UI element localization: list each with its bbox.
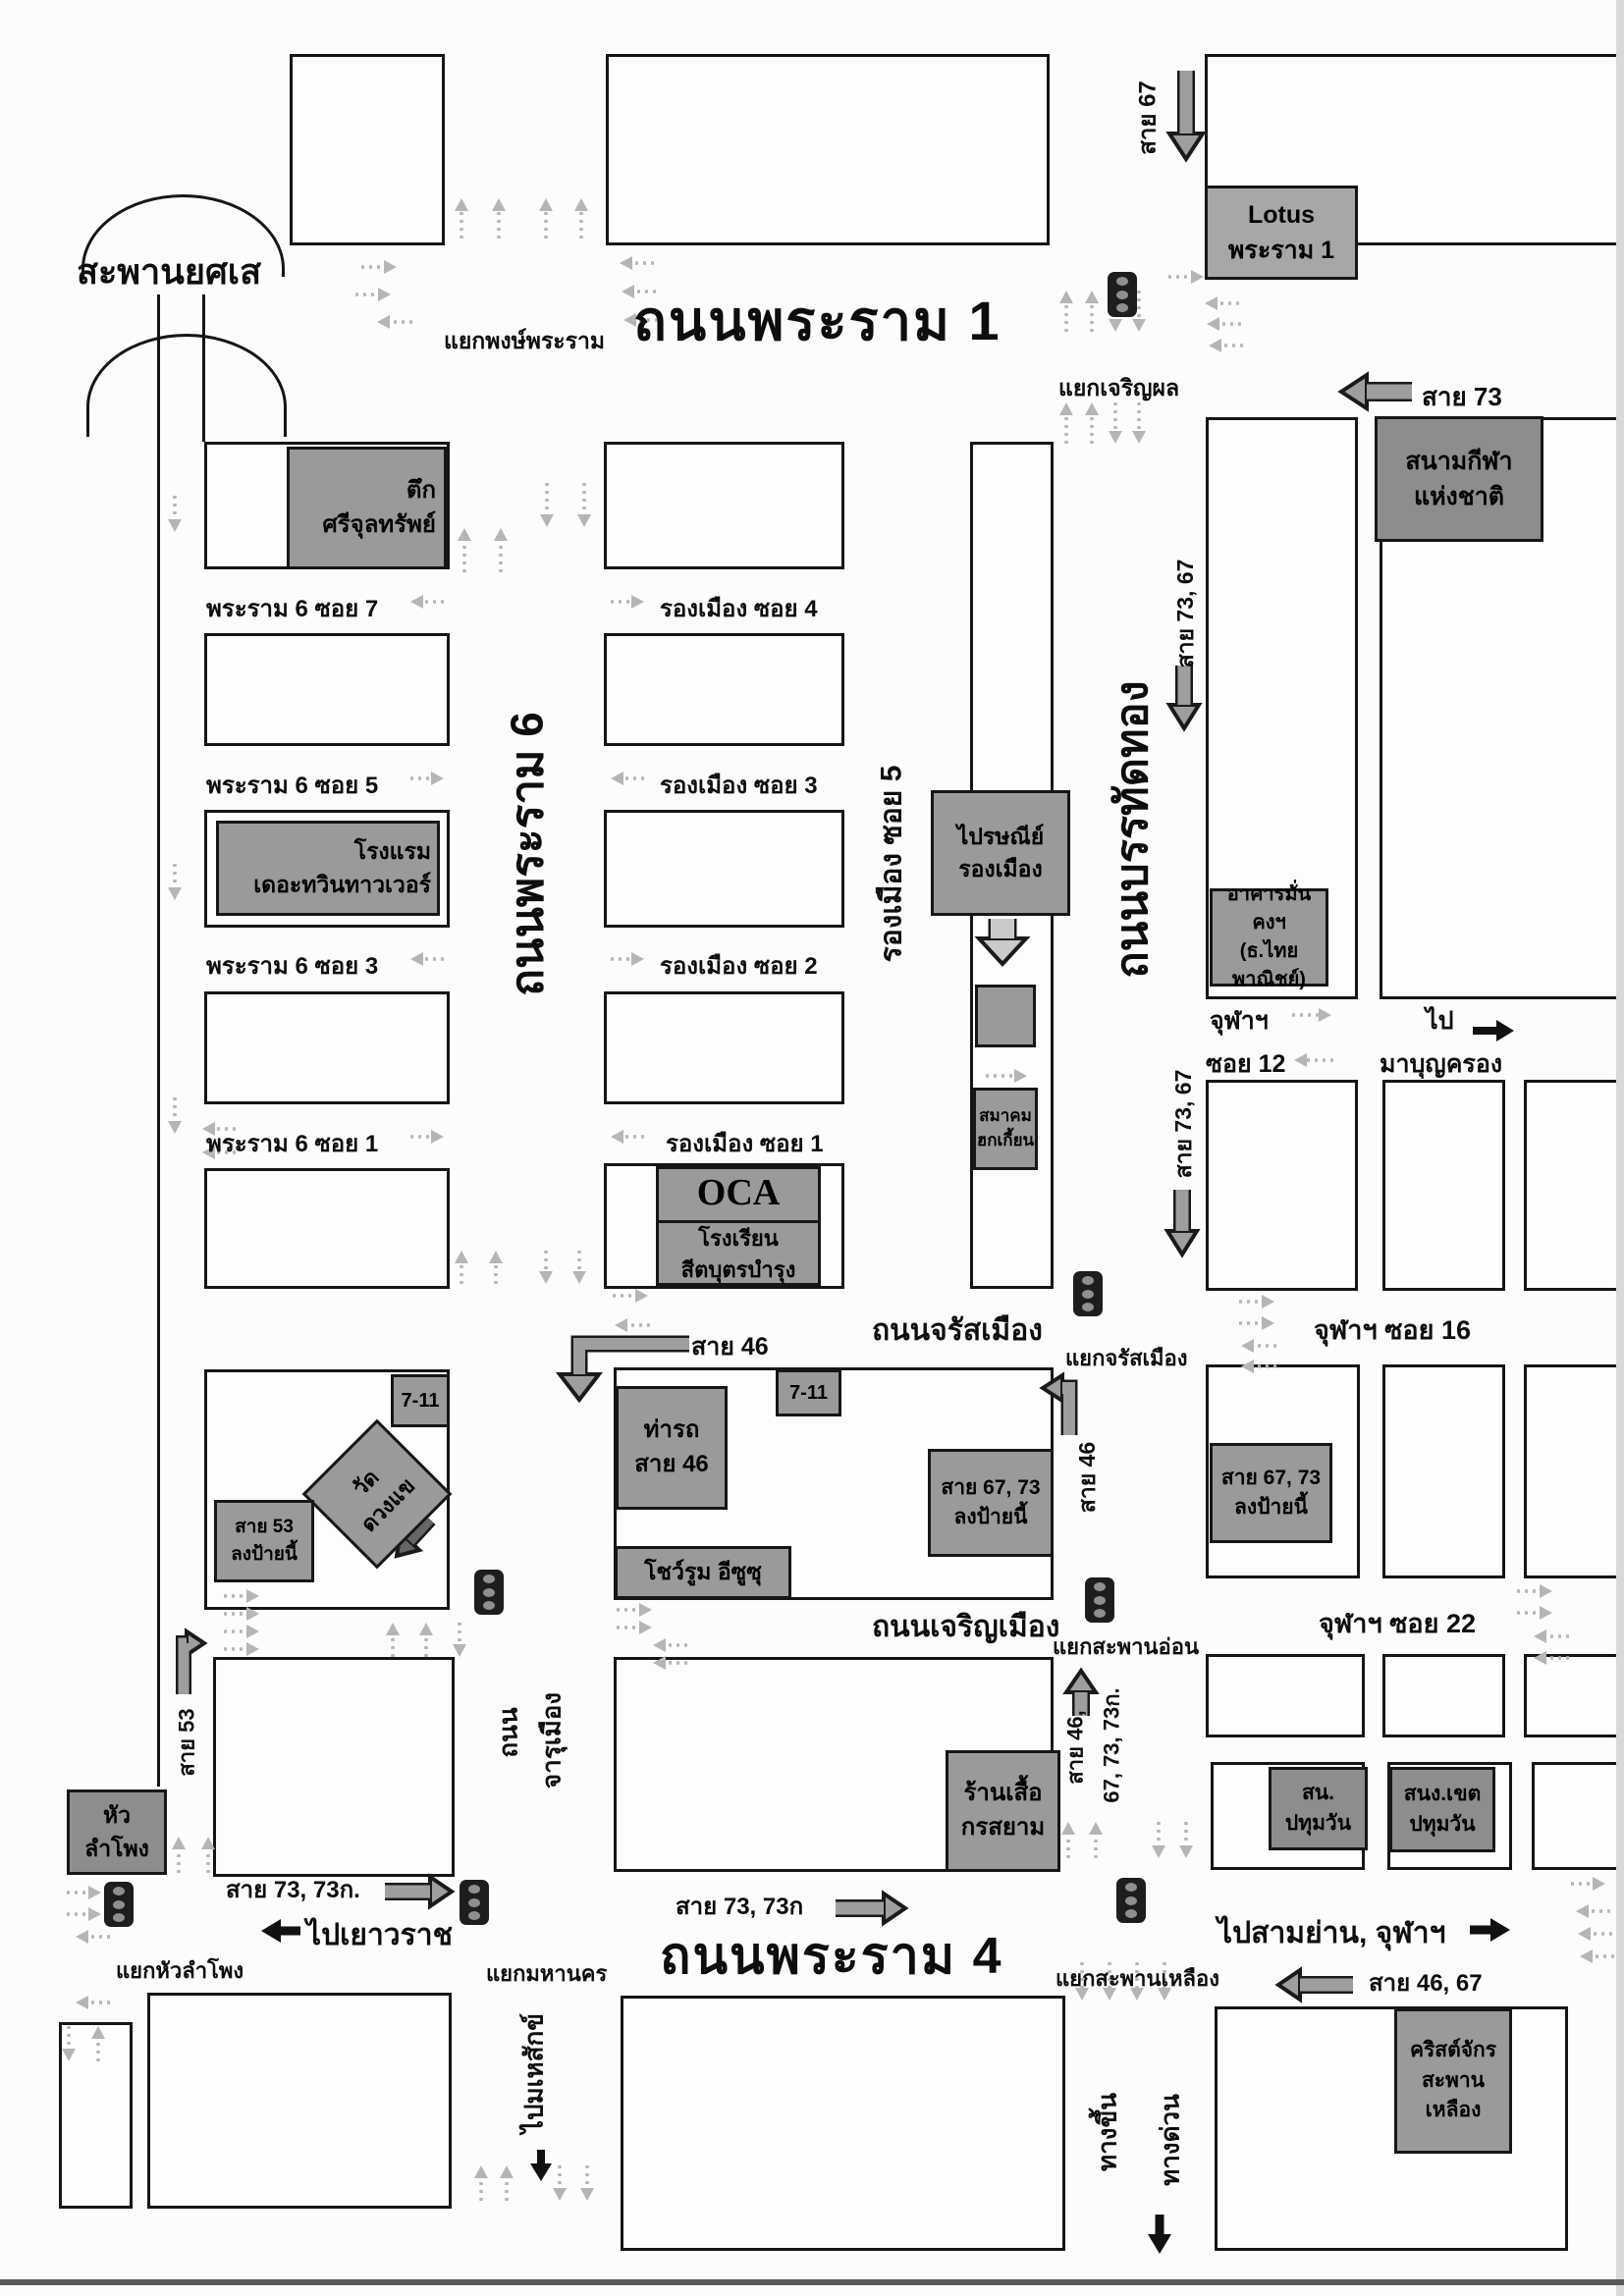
page-bottom-edge xyxy=(0,2279,1624,2285)
building-post-office: ไปรษณีย์ รองเมือง xyxy=(931,790,1070,916)
traffic-light-icon xyxy=(460,1880,489,1925)
building-munkong: อาคารมั่นคงฯ (ธ.ไทยพาณิชย์) xyxy=(1210,888,1328,987)
building-label: อาคารมั่นคงฯ xyxy=(1213,881,1326,937)
junction-hua-lamphong-label: แยกหัวลำโพง xyxy=(116,1953,244,1988)
direction-to-samyan-label: ไปสามย่าน, จุฬาฯ xyxy=(1218,1910,1445,1956)
city-block xyxy=(1215,2006,1568,2251)
route-sai73-label: สาย 73 xyxy=(1422,377,1502,417)
dotted-arrow-icon xyxy=(1089,1822,1103,1858)
building-label: เดอะทวินทาวเวอร์ xyxy=(253,869,431,901)
city-block xyxy=(204,633,450,746)
junction-saphan-lueang-label: แยกสะพานเหลือง xyxy=(1056,1961,1219,1996)
road-rama6-soi7-label: พระราม 6 ซอย 7 xyxy=(206,589,378,627)
dotted-arrow-icon xyxy=(386,1623,400,1657)
building-label: ลงป้ายนี้ xyxy=(1234,1493,1308,1522)
building-label: สมาคม xyxy=(979,1104,1032,1129)
dotted-arrow-icon xyxy=(1207,317,1241,331)
building-label: สาย 67, 73 xyxy=(1221,1464,1321,1493)
building-label: โชว์รูม อีซูซุ xyxy=(644,1556,762,1588)
dotted-arrow-icon xyxy=(455,198,468,239)
city-block xyxy=(604,633,844,746)
dotted-arrow-icon xyxy=(67,1907,101,1921)
building-isuzu-showroom: โชว์รูม อีซูซุ xyxy=(615,1546,791,1599)
building-bus67-73-stop-west: สาย 67, 73 ลงป้ายนี้ xyxy=(928,1449,1054,1557)
dotted-arrow-icon xyxy=(611,772,644,785)
dotted-arrow-icon xyxy=(611,1130,644,1144)
dotted-arrow-icon xyxy=(1085,402,1099,444)
building-label: สนามกีฬา xyxy=(1405,444,1512,479)
city-block xyxy=(1524,1654,1624,1737)
building-label: หัว xyxy=(103,1799,131,1832)
junction-mahanakhon-label: แยกมหานคร xyxy=(486,1956,607,1991)
dotted-arrow-icon xyxy=(419,1623,433,1657)
city-block xyxy=(213,1657,455,1877)
route-arrow-icon xyxy=(1066,1671,1096,1716)
road-rama6-soi5-label: พระราม 6 ซอย 5 xyxy=(206,766,378,804)
city-block xyxy=(1524,1364,1624,1578)
dotted-arrow-icon xyxy=(224,1642,259,1656)
road-chula-soi12-label: ซอย 12 xyxy=(1206,1044,1285,1084)
route-arrow-icon xyxy=(184,1631,204,1694)
road-charoen-muang-label: ถนนเจริญเมือง xyxy=(872,1604,1059,1650)
road-rong-muang-soi2-label: รองเมือง ซอย 2 xyxy=(660,946,818,985)
dotted-arrow-icon xyxy=(500,2165,514,2201)
direction-expressway-label: ทางด่วน xyxy=(1151,2094,1191,2186)
junction-saphan-on-label: แยกสะพานอ่อน xyxy=(1053,1629,1199,1664)
direction-to-yaowarat-label: ไปเยาวราช xyxy=(306,1912,453,1958)
dotted-arrow-icon xyxy=(458,528,471,572)
building-label: ลงป้ายนี้ xyxy=(231,1541,298,1569)
left-road-line-east xyxy=(202,294,205,442)
dotted-arrow-icon xyxy=(224,1625,259,1638)
dotted-arrow-icon xyxy=(615,1318,650,1332)
building-bus46-terminal: ท่ารถ สาย 46 xyxy=(616,1386,728,1510)
dotted-arrow-icon xyxy=(168,1097,182,1134)
direction-to-mbk-label: มาบุญครอง xyxy=(1380,1044,1502,1084)
road-rong-muang-soi4-label: รองเมือง ซอย 4 xyxy=(660,589,818,627)
left-road-line-west xyxy=(157,294,160,1787)
building-national-stadium: สนามกีฬา แห่งชาติ xyxy=(1375,416,1543,542)
building-label: โรงเรียน xyxy=(698,1223,779,1255)
route-arrow-icon xyxy=(385,1877,452,1906)
dotted-arrow-icon xyxy=(172,1837,186,1873)
dotted-arrow-icon xyxy=(67,1886,101,1899)
junction-phong-phraram-label: แยกพงษ์พระราม xyxy=(444,324,605,359)
dotted-arrow-icon xyxy=(617,1621,652,1634)
direction-to-mahesak-label: ไปมเหสักข์ xyxy=(514,2013,555,2133)
city-block xyxy=(147,1993,452,2209)
dotted-arrow-icon xyxy=(611,595,644,609)
dotted-arrow-icon xyxy=(1294,1053,1333,1067)
building-label: ฮกเกี้ยน xyxy=(977,1129,1034,1153)
building-seven-eleven-west: 7-11 xyxy=(391,1374,450,1427)
dotted-arrow-icon xyxy=(539,198,553,239)
dotted-arrow-icon xyxy=(410,772,444,785)
building-label: (ธ.ไทยพาณิชย์) xyxy=(1213,937,1326,994)
dotted-arrow-icon xyxy=(377,315,412,329)
dotted-arrow-icon xyxy=(1179,1822,1193,1858)
dotted-arrow-icon xyxy=(1209,339,1243,352)
dotted-arrow-icon xyxy=(410,1130,444,1144)
building-label: กรสยาม xyxy=(961,1811,1045,1845)
dotted-arrow-icon xyxy=(168,496,182,532)
dotted-arrow-icon xyxy=(492,198,506,239)
route-arrow-icon xyxy=(1278,1970,1353,2000)
building-twin-towers-hotel: โรงแรม เดอะทวินทาวเวอร์ xyxy=(216,821,440,916)
building-label: รองเมือง xyxy=(958,853,1042,885)
direction-to-mbk-label: ไป xyxy=(1426,1001,1453,1041)
dotted-arrow-icon xyxy=(1241,1339,1276,1353)
building-label: สาย 67, 73 xyxy=(941,1473,1040,1503)
building-hua-lamphong: หัว ลำโพง xyxy=(67,1789,167,1875)
city-block xyxy=(606,54,1050,245)
dotted-arrow-icon xyxy=(1534,1629,1569,1643)
city-block xyxy=(1382,1364,1505,1578)
building-label: สีตบุตรบำรุง xyxy=(681,1255,796,1286)
dotted-arrow-icon xyxy=(76,1996,110,2009)
building-label: เหลือง xyxy=(1426,2096,1482,2125)
building-lotus-rama1: Lotus พระราม 1 xyxy=(1205,186,1358,280)
road-rama6-soi3-label: พระราม 6 ซอย 3 xyxy=(206,946,378,985)
direction-arrow-icon xyxy=(1148,2215,1171,2254)
road-charu-muang-label: ถนน xyxy=(489,1707,529,1757)
dotted-arrow-icon xyxy=(1152,1822,1165,1858)
route-sai73-67-lower-label: สาย 73, 67 xyxy=(1166,1070,1202,1179)
building-korsiam-shirt-shop: ร้านเสื้อ กรสยาม xyxy=(946,1750,1060,1872)
traffic-light-icon xyxy=(1073,1271,1103,1316)
dotted-arrow-icon xyxy=(494,528,508,572)
route-arrow-icon xyxy=(1169,666,1199,728)
dotted-arrow-icon xyxy=(653,1638,687,1652)
building-label: ลงป้ายนี้ xyxy=(954,1503,1028,1532)
city-block xyxy=(1382,1080,1505,1291)
road-chula-soi12-label: จุฬาฯ xyxy=(1210,1001,1269,1041)
dotted-arrow-icon xyxy=(553,2165,567,2201)
map-page: ตึก ศรีจุลทรัพย์ Lotus พระราม 1 สนามกีฬา… xyxy=(0,0,1624,2296)
dotted-arrow-icon xyxy=(1239,1316,1274,1330)
route-sai46-67-73-73k-label: 67, 73, 73ก. xyxy=(1095,1687,1129,1802)
road-banthat-thong-label: ถนนบรรทัดทอง xyxy=(1096,680,1166,978)
direction-arrow-icon xyxy=(530,2150,552,2181)
city-block xyxy=(604,442,844,569)
building-post-office-site xyxy=(975,985,1036,1047)
dotted-arrow-icon xyxy=(1059,291,1073,332)
road-rong-muang-soi1-label: รองเมือง ซอย 1 xyxy=(666,1124,824,1162)
building-label: คริสต์จักร xyxy=(1410,2036,1496,2065)
building-label: 7-11 xyxy=(402,1387,440,1415)
city-block xyxy=(1382,1654,1505,1737)
route-sai46-67-label: สาย 46, 67 xyxy=(1369,1963,1483,2002)
building-label: สะพาน xyxy=(1422,2066,1485,2096)
dotted-arrow-icon xyxy=(453,1623,466,1657)
building-label: โรงแรม xyxy=(354,835,431,868)
dotted-arrow-icon xyxy=(410,595,444,609)
dotted-arrow-icon xyxy=(620,256,654,270)
city-block xyxy=(204,991,450,1104)
road-rama1-label: ถนนพระราม 1 xyxy=(633,277,1001,364)
building-label: ปทุมวัน xyxy=(1409,1810,1475,1840)
road-chula-soi16-label: จุฬาฯ ซอย 16 xyxy=(1314,1308,1471,1351)
route-arrow-icon xyxy=(1341,375,1412,408)
dotted-arrow-icon xyxy=(1085,291,1099,332)
building-oca-school: OCA โรงเรียน สีตบุตรบำรุง xyxy=(656,1166,821,1286)
dotted-arrow-icon xyxy=(580,2165,594,2201)
road-rong-muang-soi5-label: รองเมือง ซอย 5 xyxy=(869,766,915,963)
building-label: สน. xyxy=(1302,1779,1334,1808)
city-block xyxy=(59,2022,133,2209)
route-sai73-73k-left-label: สาย 73, 73ก. xyxy=(226,1870,360,1908)
dotted-arrow-icon xyxy=(539,1251,553,1284)
dotted-arrow-icon xyxy=(1517,1606,1552,1620)
building-label: ท่ารถ xyxy=(644,1414,700,1448)
direction-arrow-icon xyxy=(261,1919,300,1943)
building-label: สนง.เขต xyxy=(1404,1780,1481,1809)
dotted-arrow-icon xyxy=(410,952,444,966)
building-label: ตึก xyxy=(406,474,436,508)
dotted-arrow-icon xyxy=(1571,1877,1605,1891)
building-label: ลำโพง xyxy=(84,1833,149,1865)
route-arrow-icon xyxy=(1169,71,1203,159)
road-chula-soi22-label: จุฬาฯ ซอย 22 xyxy=(1319,1602,1476,1644)
junction-charoen-phol-label: แยกเจริญผล xyxy=(1058,371,1179,406)
bridge-arc-south xyxy=(86,334,287,437)
city-block xyxy=(290,54,445,245)
building-hokkien-association: สมาคม ฮกเกี้ยน xyxy=(973,1088,1038,1170)
bridge-label: สะพานยศเส xyxy=(77,243,261,299)
dotted-arrow-icon xyxy=(1168,270,1204,284)
route-sai67-label: สาย 67 xyxy=(1128,80,1166,155)
road-rama4-label: ถนนพระราม 4 xyxy=(660,1914,1003,1996)
dotted-arrow-icon xyxy=(1132,402,1146,444)
dotted-arrow-icon xyxy=(1059,402,1073,444)
route-sai46-label: สาย 46 xyxy=(691,1327,769,1366)
road-rama6-label: ถนนพระราม 6 xyxy=(492,712,564,996)
city-block xyxy=(1206,1654,1365,1737)
dotted-arrow-icon xyxy=(1292,1008,1331,1022)
route-sai46-67-73-73k-label: สาย 46, xyxy=(1058,1710,1093,1784)
page-edge-shadow xyxy=(1616,0,1624,2296)
building-pathumwan-police: สน. ปทุมวัน xyxy=(1269,1767,1368,1850)
dotted-arrow-icon xyxy=(361,260,397,274)
dotted-arrow-icon xyxy=(489,1251,503,1284)
dotted-arrow-icon xyxy=(1578,1927,1612,1941)
route-arrow-icon xyxy=(1167,1190,1197,1255)
traffic-light-icon xyxy=(1108,272,1137,317)
building-label: ไปรษณีย์ xyxy=(957,821,1045,853)
city-block xyxy=(604,810,844,928)
road-rama6-soi1-label: พระราม 6 ซอย 1 xyxy=(206,1124,378,1162)
building-label: ศรีจุลทรัพย์ xyxy=(323,508,437,543)
building-label: 7-11 xyxy=(789,1379,828,1408)
dotted-arrow-icon xyxy=(76,1930,110,1944)
dotted-arrow-icon xyxy=(574,198,588,239)
city-block xyxy=(1532,1762,1624,1870)
building-label: Lotus xyxy=(1248,197,1315,233)
building-label: แห่งชาติ xyxy=(1414,479,1504,514)
dotted-arrow-icon xyxy=(572,1251,586,1284)
building-bus67-73-stop-east: สาย 67, 73 ลงป้ายนี้ xyxy=(1210,1443,1332,1543)
dotted-arrow-icon xyxy=(1580,1949,1614,1963)
city-block xyxy=(604,991,844,1104)
building-label: ร้านเสื้อ xyxy=(963,1777,1042,1811)
dotted-arrow-icon xyxy=(611,952,644,966)
dotted-arrow-icon xyxy=(1061,1822,1075,1858)
dotted-arrow-icon xyxy=(613,1289,648,1303)
city-block xyxy=(1524,1080,1624,1291)
dotted-arrow-icon xyxy=(577,483,591,527)
building-label: สาย 46 xyxy=(634,1448,709,1482)
dotted-arrow-icon xyxy=(1239,1295,1274,1308)
direction-arrow-icon xyxy=(1473,1020,1514,1041)
dotted-arrow-icon xyxy=(474,2165,488,2201)
road-rong-muang-soi3-label: รองเมือง ซอย 3 xyxy=(660,766,818,804)
dotted-arrow-icon xyxy=(1205,296,1239,310)
traffic-light-icon xyxy=(1116,1878,1146,1923)
dotted-arrow-icon xyxy=(617,1603,652,1617)
city-block xyxy=(621,1996,1065,2251)
direction-expressway-entrance-label: ทางขึ้น xyxy=(1088,2093,1128,2171)
building-label: OCA xyxy=(659,1166,818,1223)
route-sai73-67-upper-label: สาย 73, 67 xyxy=(1168,560,1204,668)
road-charat-muang-label: ถนนจรัสเมือง xyxy=(872,1308,1043,1354)
city-block xyxy=(1206,1080,1358,1291)
building-saphan-lueang-church: คริสต์จักร สะพาน เหลือง xyxy=(1394,2008,1512,2154)
dotted-arrow-icon xyxy=(455,1251,468,1284)
dotted-arrow-icon xyxy=(355,288,391,301)
dotted-arrow-icon xyxy=(1109,402,1122,444)
traffic-light-icon xyxy=(474,1570,504,1615)
building-label: สาย 53 xyxy=(235,1514,294,1541)
dotted-arrow-icon xyxy=(168,864,182,900)
route-sai53-label: สาย 53 xyxy=(170,1708,204,1776)
dotted-arrow-icon xyxy=(540,483,554,527)
traffic-light-icon xyxy=(104,1882,134,1927)
traffic-light-icon xyxy=(1085,1577,1114,1623)
dotted-arrow-icon xyxy=(1517,1584,1552,1598)
building-sri-chulasap: ตึก ศรีจุลทรัพย์ xyxy=(287,447,447,569)
building-pathumwan-district-office: สนง.เขต ปทุมวัน xyxy=(1389,1767,1495,1852)
building-seven-eleven-east: 7-11 xyxy=(776,1369,841,1416)
dotted-arrow-icon xyxy=(1576,1904,1610,1918)
junction-charat-muang-label: แยกจรัสเมือง xyxy=(1065,1341,1188,1375)
building-bus53-stop: สาย 53 ลงป้ายนี้ xyxy=(214,1500,314,1582)
direction-arrow-icon xyxy=(1470,1918,1510,1942)
route-sai46-turn-label: สาย 46 xyxy=(1070,1442,1106,1513)
road-charu-muang-label: จารุเมือง xyxy=(532,1692,572,1789)
building-label: ปทุมวัน xyxy=(1285,1809,1351,1839)
building-label: พระราม 1 xyxy=(1228,233,1334,268)
city-block xyxy=(204,1168,450,1289)
